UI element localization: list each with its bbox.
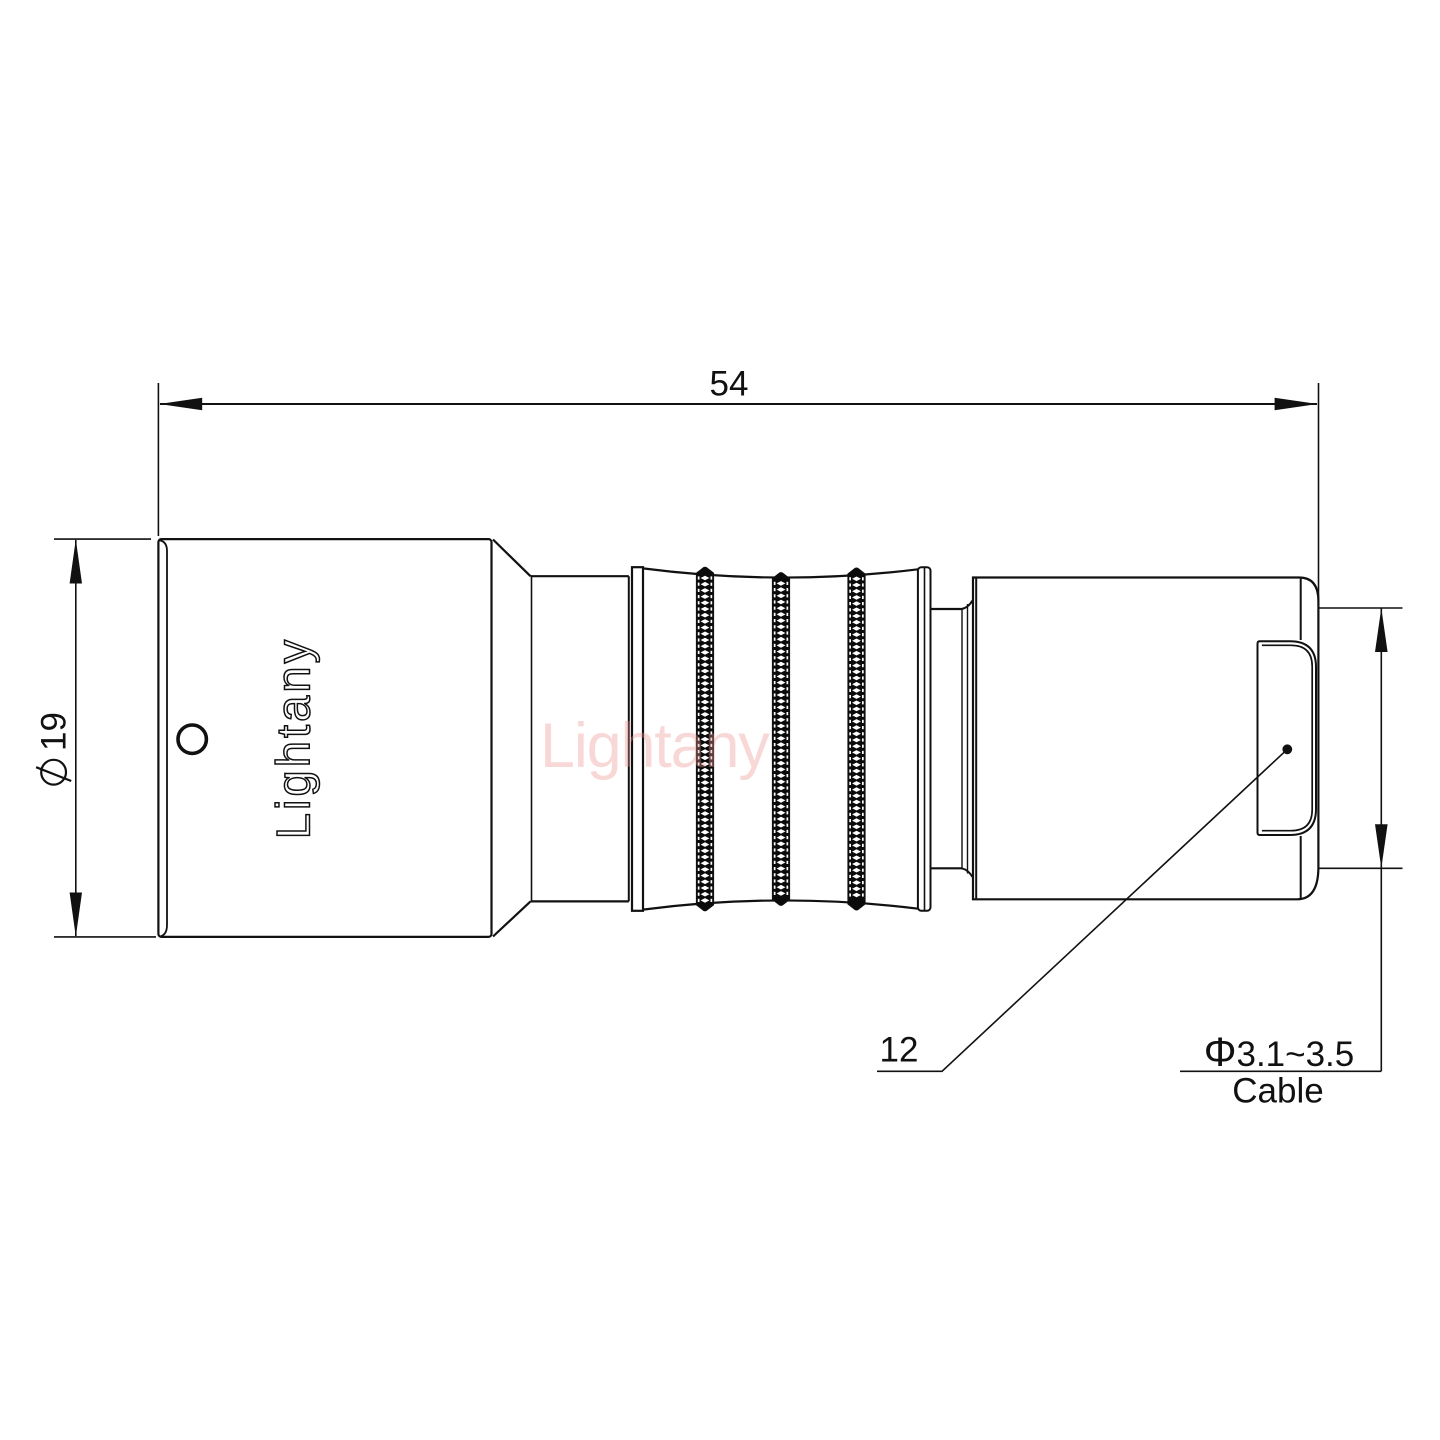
svg-text:Lightany: Lightany	[540, 711, 770, 781]
svg-text:Cable: Cable	[1232, 1072, 1323, 1111]
svg-text:19: 19	[35, 712, 74, 751]
svg-text:54: 54	[710, 365, 749, 404]
svg-text:12: 12	[880, 1030, 919, 1069]
svg-text:Φ3.1~3.5: Φ3.1~3.5	[1204, 1029, 1354, 1075]
svg-text:Lightany: Lightany	[267, 637, 320, 840]
